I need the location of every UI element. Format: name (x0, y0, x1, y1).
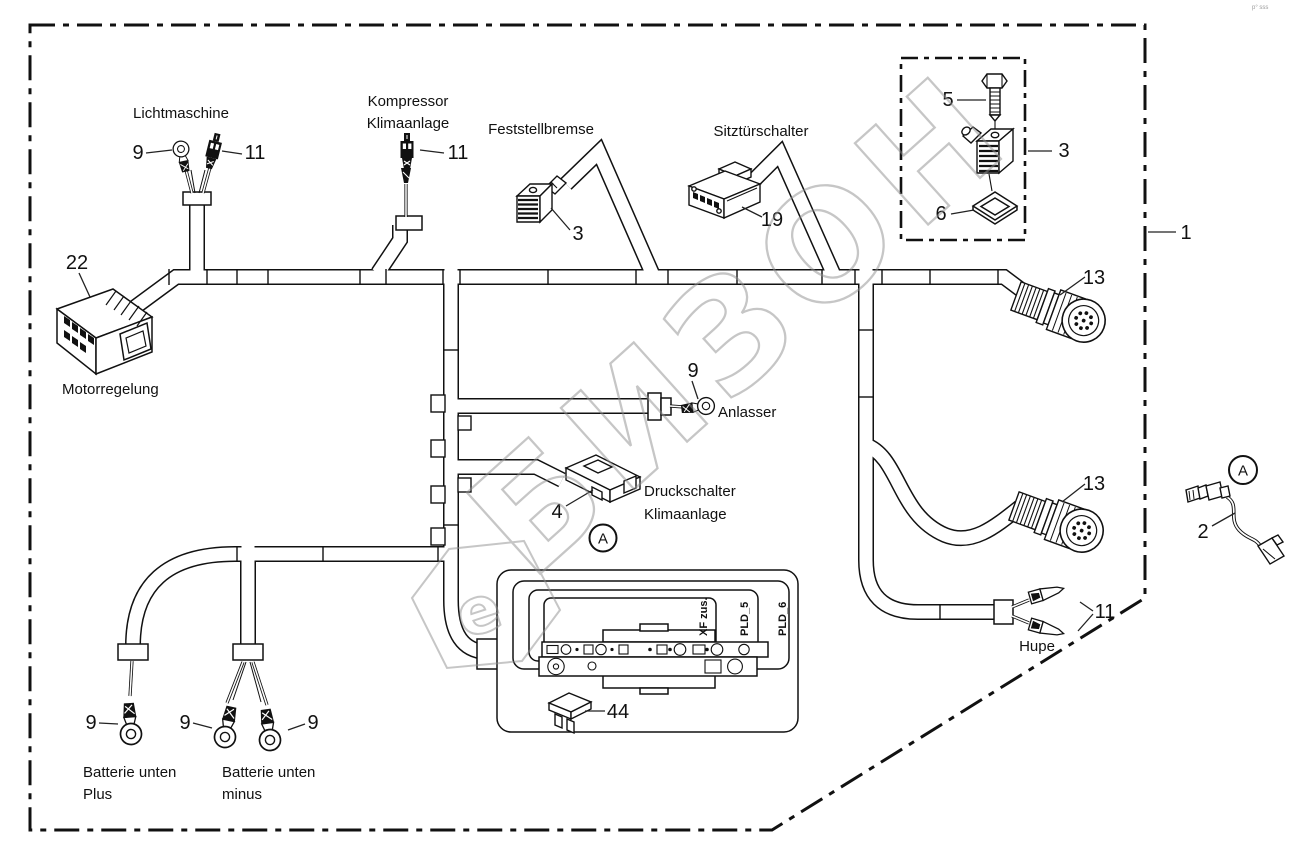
corner-note: p° sss (1252, 5, 1268, 11)
ring-terminal-battery-minus-left (213, 704, 242, 749)
label-battery-plus-1: Batterie unten (83, 764, 176, 781)
callout-3-parking-brake: 3 (572, 223, 583, 245)
parking-brake-connector (517, 176, 566, 222)
spade-terminal-horn-upper (1028, 583, 1065, 604)
callout-11-compressor: 11 (448, 142, 469, 164)
label-battery-minus-2: minus (222, 786, 262, 803)
label-battery-minus-1: Batterie unten (222, 764, 315, 781)
label-ecu-pld6: PLD_6 (777, 602, 789, 636)
callout-44-fuse: 44 (607, 701, 629, 723)
callout-22-engine-control: 22 (66, 252, 88, 274)
callout-13-bottom: 13 (1083, 473, 1105, 495)
callout-9-battery-plus: 9 (85, 712, 96, 734)
label-alternator: Lichtmaschine (133, 105, 229, 122)
ac-plug-crimp (401, 168, 411, 183)
ring-terminal-battery-plus (118, 702, 142, 745)
label-engine-control: Motorregelung (62, 381, 159, 398)
callout-1-harness: 1 (1180, 222, 1191, 244)
callout-9-battery-minus-left: 9 (179, 712, 190, 734)
callout-11-horn: 11 (1095, 601, 1116, 623)
label-seat-door-switch: Sitztürschalter (713, 123, 808, 140)
callout-2-pigtail: 2 (1197, 521, 1208, 543)
ring-terminal-battery-minus-right (255, 708, 282, 752)
blade-plug-alternator (203, 132, 224, 170)
blade-plug-compressor (401, 133, 414, 169)
callout-3-kit: 3 (1058, 140, 1069, 162)
callout-13-top: 13 (1083, 267, 1105, 289)
label-battery-plus-2: Plus (83, 786, 112, 803)
label-horn: Hupe (1019, 638, 1055, 655)
label-ecu-xf: XF zus. (698, 597, 710, 636)
wiring-harness-diagram: 9 11 11 3 19 5 3 6 1 22 9 4 44 9 9 9 13 … (0, 0, 1291, 851)
diagram-page: 9 11 11 3 19 5 3 6 1 22 9 4 44 9 9 9 13 … (0, 0, 1291, 851)
label-parking-brake: Feststellbremse (488, 121, 594, 138)
callout-11-alternator: 11 (245, 142, 266, 164)
label-compressor-1: Kompressor (368, 93, 449, 110)
label-compressor-2: Klimaanlage (367, 115, 450, 132)
view-marker-a-letter: A (1238, 463, 1248, 480)
round-connector-bottom (1007, 486, 1110, 558)
ring-terminal-alternator (172, 140, 194, 174)
view-marker-a-pigtail: A (1229, 456, 1257, 484)
callout-9-battery-minus-right: 9 (307, 712, 318, 734)
spade-terminal-horn-lower (1028, 618, 1065, 639)
label-ecu-pld5: PLD_5 (739, 602, 751, 636)
callout-9-alternator: 9 (132, 142, 143, 164)
